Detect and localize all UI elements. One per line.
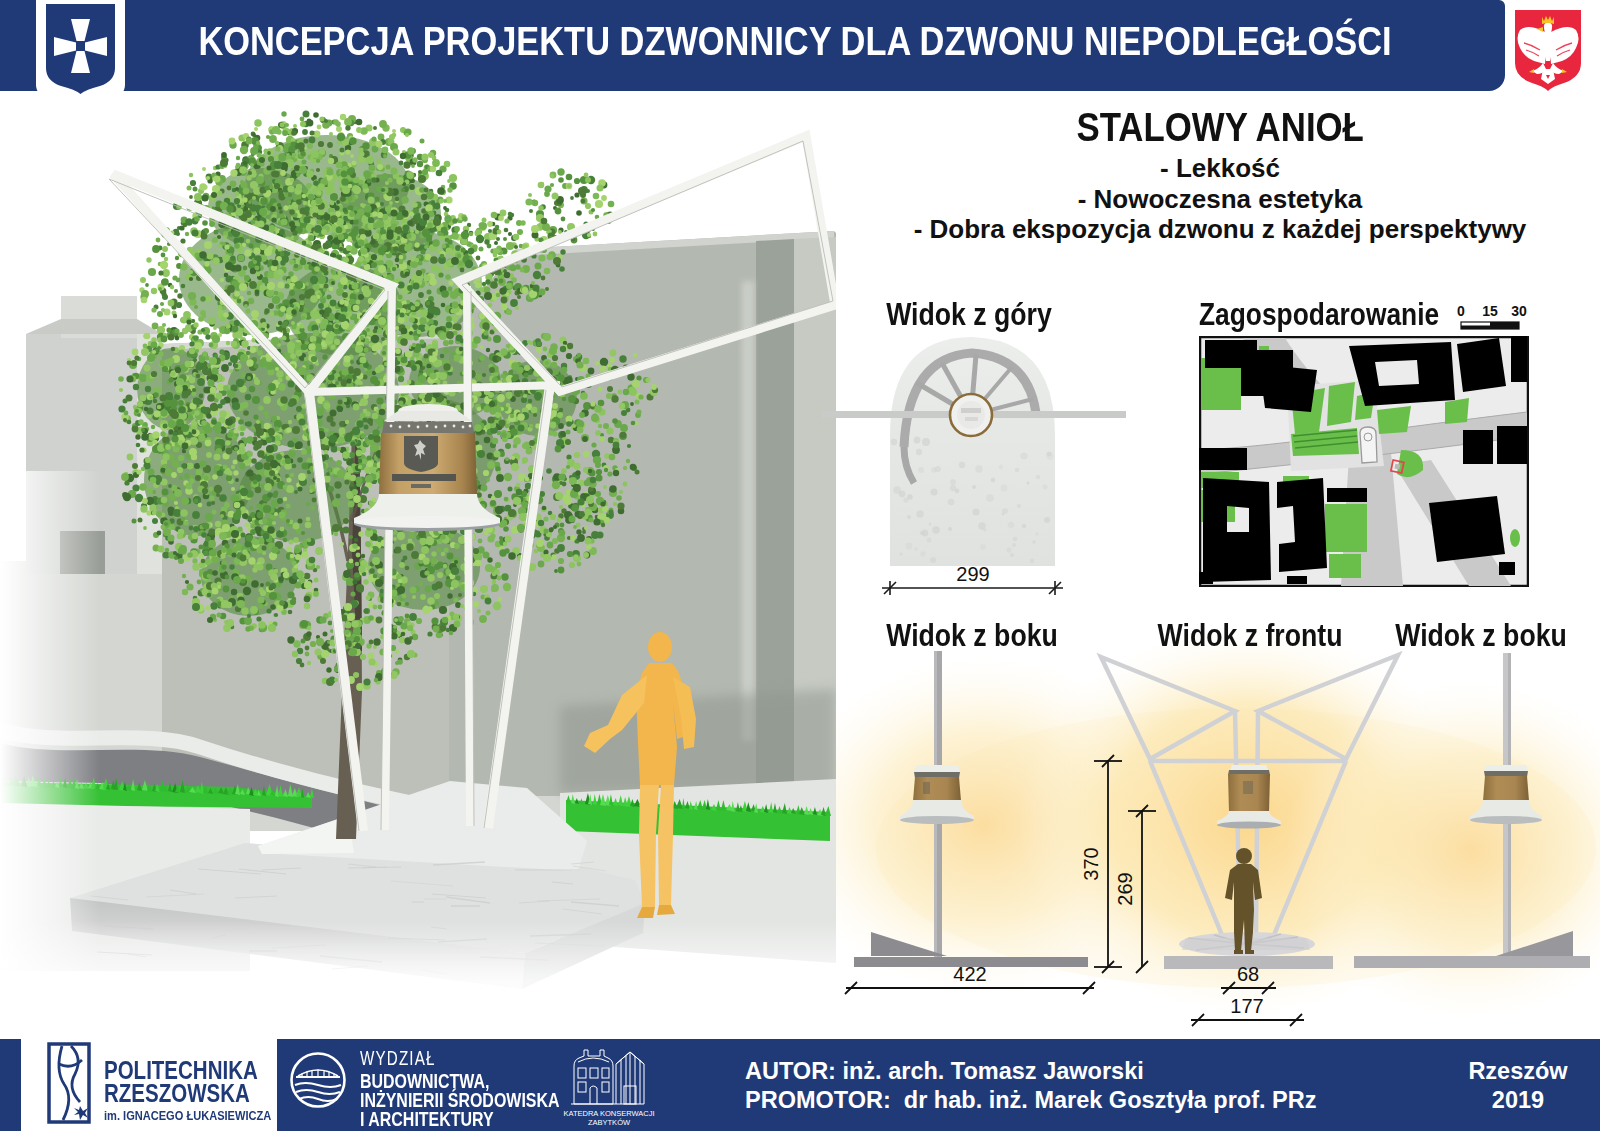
svg-text:0: 0 (1457, 303, 1465, 319)
svg-text:KATEDRA KONSERWACJI: KATEDRA KONSERWACJI (563, 1109, 654, 1118)
svg-text:422: 422 (953, 963, 986, 985)
svg-text:30: 30 (1511, 303, 1527, 319)
svg-text:370: 370 (1080, 847, 1102, 880)
svg-text:269: 269 (1114, 872, 1136, 905)
svg-text:ZABYTKÓW: ZABYTKÓW (588, 1118, 631, 1127)
svg-text:177: 177 (1230, 995, 1263, 1017)
svg-text:299: 299 (956, 563, 989, 585)
svg-text:15: 15 (1482, 303, 1498, 319)
svg-text:68: 68 (1237, 963, 1259, 985)
